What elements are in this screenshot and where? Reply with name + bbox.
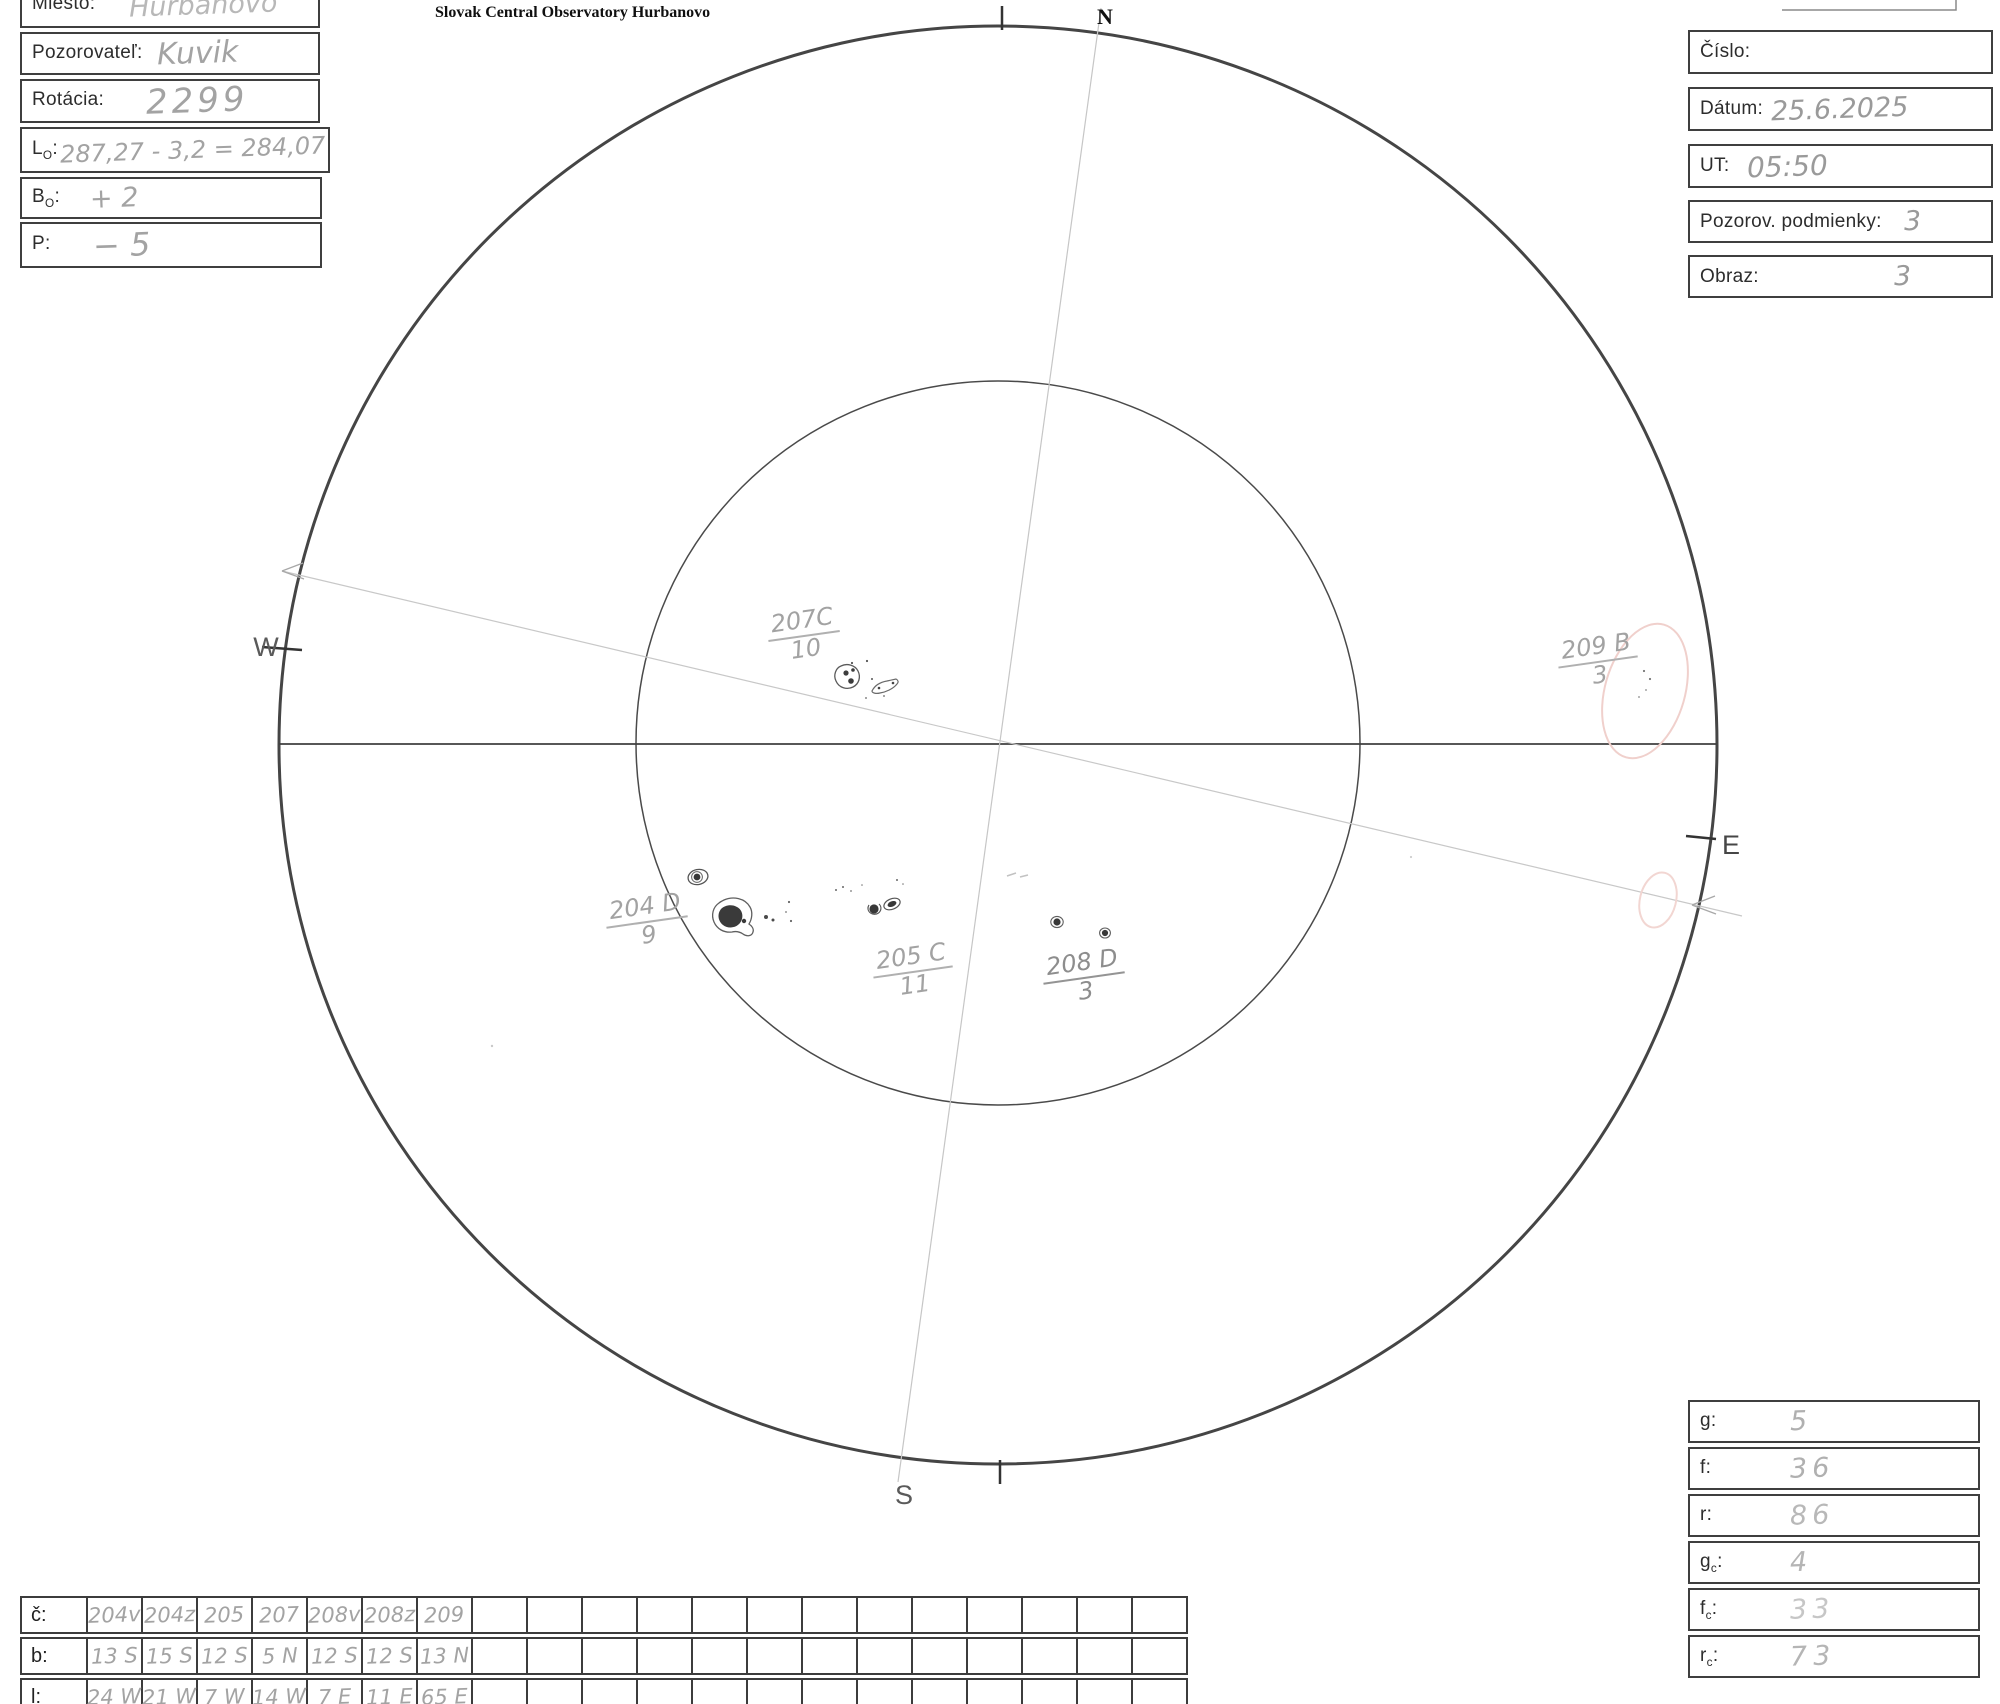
table-cell-empty [746,1596,803,1634]
field-label: Obraz: [1700,266,1759,288]
stat-value: 73 [1789,1640,1836,1673]
field-miesto: Miesto: Hurbanovo [20,0,320,28]
field-label: Dátum: [1700,98,1763,120]
table-cell-empty [1076,1596,1133,1634]
table-cell-empty [636,1596,693,1634]
field-value: 3 [1893,261,1911,293]
field-label: Miesto: [32,0,95,17]
groups-table: č: 204v 204z 205 207 208v 208z 209 b: 13… [20,1596,1188,1704]
stat-value: 36 [1789,1452,1834,1485]
table-cell: 7 W [196,1678,253,1704]
cutoff-box-edge [1782,0,1956,10]
table-cell-empty [1021,1637,1078,1675]
table-cell-empty [1076,1678,1133,1704]
table-cell: 205 [196,1596,253,1634]
field-label: P: [32,233,51,257]
solar-disk-circle [279,26,1717,1464]
table-cell: 13 N [416,1637,473,1675]
field-label: Číslo: [1700,41,1750,63]
field-label: BO: [32,186,60,210]
table-cell-empty [691,1678,748,1704]
table-cell-empty [911,1637,968,1675]
table-cell-empty [526,1596,583,1634]
table-cell-empty [636,1637,693,1675]
table-cell-empty [856,1678,913,1704]
stat-r: r: 86 [1688,1494,1980,1537]
field-cislo: Číslo: [1688,30,1993,74]
stat-label: r: [1700,1504,1712,1528]
table-cell-empty [746,1637,803,1675]
table-cell: 65 E [416,1678,473,1704]
table-cell-empty [526,1637,583,1675]
field-rotacia: Rotácia: 2299 [20,79,320,123]
sunspot-group-204-drawing [687,868,792,936]
table-cell-empty [471,1678,528,1704]
stat-f: f: 36 [1688,1447,1980,1490]
field-pozorovatel: Pozorovateľ: Kuvik [20,32,320,75]
table-cell-empty [911,1596,968,1634]
inner-reference-circle [636,381,1360,1105]
stat-label: f: [1700,1457,1711,1481]
table-cell: 21 W [141,1678,198,1704]
stat-value: 33 [1789,1593,1834,1626]
sunspot-group-207-drawing [835,660,898,699]
field-lo: LO: 287,27 - 3,2 = 284,07 [20,127,330,173]
table-cell-empty [581,1596,638,1634]
table-cell-empty [1076,1637,1133,1675]
field-label: Pozorov. podmienky: [1700,211,1882,233]
table-cell-empty [801,1596,858,1634]
field-label: UT: [1700,155,1729,177]
field-obraz: Obraz: 3 [1688,255,1993,298]
group-label-205: 205 C 11 [869,939,958,1005]
compass-east-label: E [1722,830,1740,860]
table-cell-empty [801,1637,858,1675]
field-value: + 2 [90,182,139,215]
field-datum: Dátum: 25.6.2025 [1688,87,1993,131]
table-cell-empty [856,1596,913,1634]
table-cell: 14 W [251,1678,308,1704]
field-value: Kuvik [156,35,239,73]
scanned-observation-sheet: { "title": "Slovak Central Observatory H… [0,0,2000,1704]
stat-gc: gc: 4 [1688,1541,1980,1584]
table-cell: 208v [306,1596,363,1634]
compass-north-label: N [1097,4,1113,29]
stat-fc: fc: 33 [1688,1588,1980,1631]
pencil-meridian-line [898,8,1101,1482]
compass-south-label: S [895,1480,913,1510]
stat-label: fc: [1700,1598,1717,1622]
table-cell-empty [471,1596,528,1634]
row-label: l: [20,1678,88,1704]
table-cell: 5 N [251,1637,308,1675]
table-row-c: č: 204v 204z 205 207 208v 208z 209 [20,1596,1188,1634]
table-cell: 12 S [196,1637,253,1675]
table-cell-empty [1131,1678,1188,1704]
row-label: č: [20,1596,88,1634]
table-cell-empty [966,1637,1023,1675]
field-bo: BO: + 2 [20,177,322,219]
table-cell: 13 S [86,1637,143,1675]
table-cell: 208z [361,1596,418,1634]
field-value: 2299 [145,79,249,123]
field-ut: UT: 05:50 [1688,144,1993,188]
table-cell: 15 S [141,1637,198,1675]
field-value: 3 [1903,206,1921,238]
table-cell: 11 E [361,1678,418,1704]
field-podmienky: Pozorov. podmienky: 3 [1688,200,1993,243]
table-cell-empty [1131,1637,1188,1675]
table-cell-empty [856,1637,913,1675]
table-cell: 209 [416,1596,473,1634]
table-cell-empty [911,1678,968,1704]
table-cell: 7 E [306,1678,363,1704]
stat-value: 86 [1789,1499,1834,1532]
table-cell-empty [471,1637,528,1675]
compass-west-label: W [253,632,279,662]
field-value: Hurbanovo [129,0,278,23]
sunspot-group-208-drawing [1007,873,1110,938]
stat-rc: rc: 73 [1688,1635,1980,1678]
table-row-l: l: 24 W 21 W 7 W 14 W 7 E 11 E 65 E [20,1678,1188,1704]
stat-value: 5 [1789,1406,1807,1438]
table-cell-empty [966,1596,1023,1634]
scan-speck [1410,856,1412,858]
table-cell-empty [1021,1678,1078,1704]
scan-speck [491,1045,493,1047]
page-title: Slovak Central Observatory Hurbanovo [435,4,710,22]
field-label: Pozorovateľ: [32,42,143,66]
field-label: LO: [32,138,58,162]
table-cell-empty [1131,1596,1188,1634]
table-cell-empty [636,1678,693,1704]
table-cell-empty [801,1678,858,1704]
field-value: − 5 [92,225,151,265]
field-label: Rotácia: [32,89,104,113]
table-cell: 24 W [86,1678,143,1704]
table-cell: 12 S [361,1637,418,1675]
table-cell: 12 S [306,1637,363,1675]
group-label-207: 207C 10 [759,602,850,668]
table-cell: 207 [251,1596,308,1634]
table-cell-empty [691,1596,748,1634]
stat-value: 4 [1789,1547,1807,1579]
stat-label: gc: [1700,1551,1723,1575]
table-cell-empty [966,1678,1023,1704]
field-value: 25.6.2025 [1771,91,1909,127]
table-row-b: b: 13 S 15 S 12 S 5 N 12 S 12 S 13 N [20,1637,1188,1675]
row-label: b: [20,1637,88,1675]
stat-label: g: [1700,1410,1716,1434]
table-cell: 204z [141,1596,198,1634]
table-cell-empty [746,1678,803,1704]
table-cell-empty [526,1678,583,1704]
field-value: 287,27 - 3,2 = 284,07 [60,131,326,168]
table-cell-empty [691,1637,748,1675]
field-value: 05:50 [1747,148,1829,184]
field-p: P: − 5 [20,222,322,268]
sunspot-group-205-drawing [835,879,904,914]
table-cell-empty [581,1678,638,1704]
table-cell-empty [1021,1596,1078,1634]
stat-g: g: 5 [1688,1400,1980,1443]
table-cell-empty [581,1637,638,1675]
stat-label: rc: [1700,1645,1718,1669]
table-cell: 204v [86,1596,143,1634]
